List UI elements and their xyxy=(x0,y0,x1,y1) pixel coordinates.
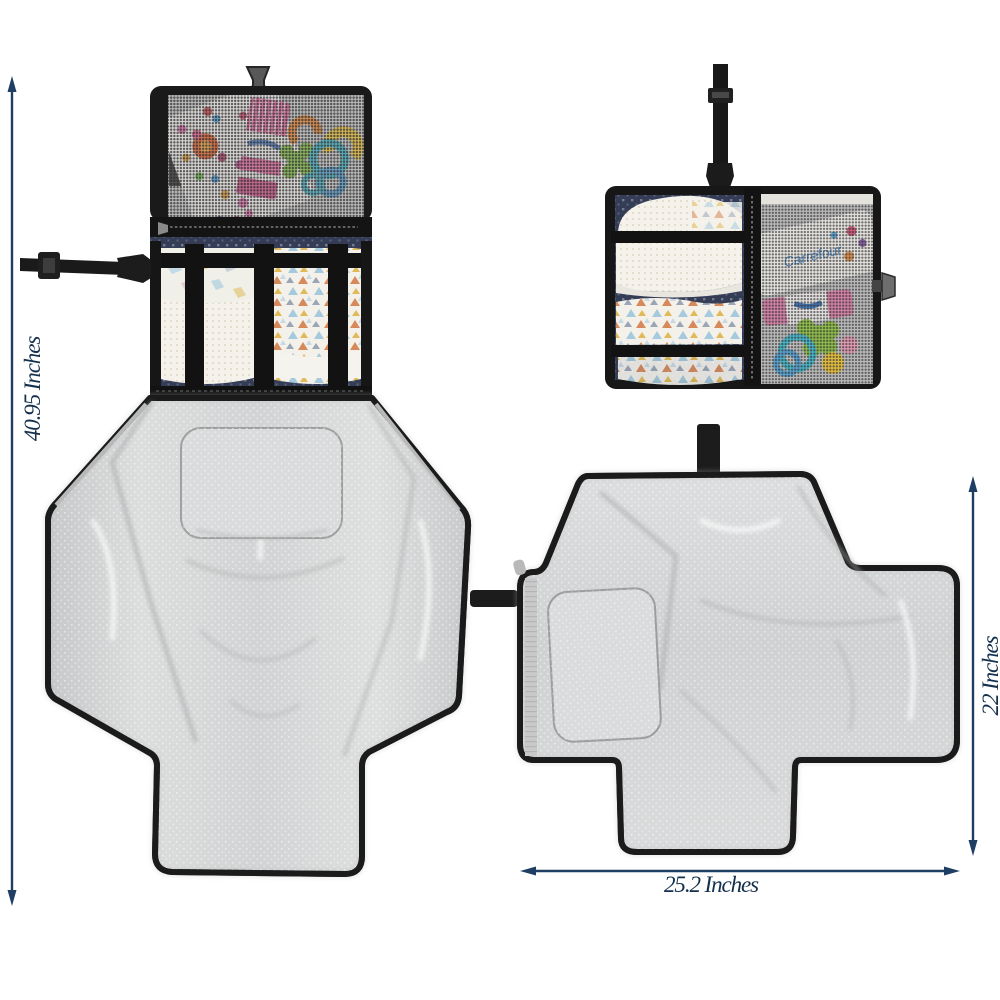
svg-text:40.95 Inches: 40.95 Inches xyxy=(20,336,45,441)
svg-text:25.2 Inches: 25.2 Inches xyxy=(664,872,759,897)
svg-text:22 Inches: 22 Inches xyxy=(978,635,1000,715)
